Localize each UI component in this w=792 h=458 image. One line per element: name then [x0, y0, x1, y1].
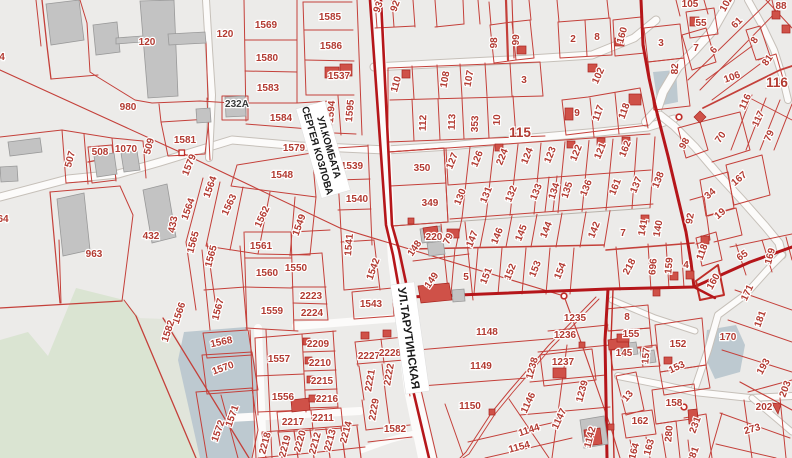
svg-text:115: 115 — [509, 125, 531, 140]
svg-text:55: 55 — [695, 18, 707, 29]
svg-text:202: 202 — [756, 402, 773, 413]
svg-text:1583: 1583 — [257, 83, 280, 94]
svg-text:2223: 2223 — [300, 291, 323, 302]
svg-text:1556: 1556 — [272, 392, 295, 403]
svg-text:1070: 1070 — [115, 144, 138, 155]
svg-text:152: 152 — [670, 339, 687, 350]
svg-text:2224: 2224 — [301, 308, 324, 319]
svg-text:5: 5 — [463, 272, 469, 283]
svg-text:98: 98 — [489, 37, 500, 49]
svg-text:963: 963 — [86, 249, 103, 260]
svg-text:155: 155 — [623, 329, 640, 340]
svg-text:7: 7 — [620, 228, 626, 239]
svg-text:1537: 1537 — [328, 71, 351, 82]
svg-text:3: 3 — [521, 75, 527, 86]
svg-text:145: 145 — [616, 348, 633, 359]
svg-text:1148: 1148 — [476, 327, 498, 338]
svg-text:159: 159 — [663, 257, 675, 275]
svg-text:1569: 1569 — [255, 20, 278, 31]
svg-text:7: 7 — [693, 43, 699, 54]
svg-text:508: 508 — [92, 147, 109, 158]
svg-text:1557: 1557 — [268, 354, 291, 365]
svg-text:4: 4 — [683, 260, 689, 271]
svg-text:170: 170 — [720, 332, 737, 343]
svg-text:82: 82 — [670, 63, 681, 75]
svg-text:2209: 2209 — [307, 339, 330, 350]
svg-text:1543: 1543 — [360, 299, 383, 310]
svg-text:1559: 1559 — [261, 306, 284, 317]
svg-text:8: 8 — [624, 312, 630, 323]
svg-text:1579: 1579 — [283, 143, 306, 154]
svg-text:2: 2 — [570, 34, 576, 45]
svg-text:3: 3 — [658, 38, 664, 49]
svg-text:116: 116 — [766, 75, 788, 90]
svg-text:1548: 1548 — [271, 170, 294, 181]
svg-text:2228: 2228 — [379, 348, 402, 359]
svg-text:1581: 1581 — [174, 135, 197, 146]
svg-text:1560: 1560 — [256, 268, 279, 279]
svg-text:1235: 1235 — [564, 313, 587, 324]
svg-text:2227: 2227 — [358, 351, 381, 362]
svg-text:350: 350 — [414, 163, 431, 174]
svg-text:1541: 1541 — [343, 233, 356, 257]
svg-text:2210: 2210 — [309, 358, 332, 369]
svg-text:64: 64 — [0, 214, 9, 225]
svg-text:88: 88 — [775, 1, 787, 12]
svg-text:2216: 2216 — [316, 394, 339, 405]
svg-text:99: 99 — [511, 34, 522, 46]
svg-text:1595: 1595 — [344, 99, 357, 123]
svg-text:1584: 1584 — [270, 113, 293, 124]
svg-text:8: 8 — [594, 32, 600, 43]
svg-text:1149: 1149 — [470, 361, 492, 372]
svg-text:1540: 1540 — [346, 194, 369, 205]
svg-text:1236: 1236 — [554, 330, 577, 341]
svg-text:232A: 232A — [225, 99, 249, 110]
svg-text:105: 105 — [682, 0, 699, 10]
svg-text:1561: 1561 — [250, 241, 273, 252]
svg-text:120: 120 — [139, 37, 156, 48]
svg-text:1550: 1550 — [285, 263, 308, 274]
svg-text:9: 9 — [574, 108, 580, 119]
svg-text:162: 162 — [632, 416, 649, 427]
svg-text:220: 220 — [426, 232, 443, 243]
svg-text:980: 980 — [120, 102, 137, 113]
svg-text:1585: 1585 — [319, 12, 342, 23]
svg-text:10: 10 — [492, 114, 503, 126]
svg-text:1580: 1580 — [256, 53, 279, 64]
svg-text:113: 113 — [447, 113, 459, 130]
svg-text:4: 4 — [0, 52, 5, 63]
svg-text:112: 112 — [418, 114, 430, 131]
svg-text:353: 353 — [470, 115, 482, 132]
svg-text:2215: 2215 — [311, 376, 334, 387]
svg-text:1237: 1237 — [552, 357, 575, 368]
svg-text:2211: 2211 — [312, 413, 334, 424]
svg-text:120: 120 — [217, 29, 234, 40]
svg-text:1150: 1150 — [459, 401, 481, 412]
svg-text:158: 158 — [666, 398, 683, 409]
svg-text:280: 280 — [663, 425, 675, 443]
svg-text:2217: 2217 — [282, 417, 305, 428]
svg-text:1582: 1582 — [384, 424, 407, 435]
svg-text:432: 432 — [143, 231, 160, 242]
svg-text:696: 696 — [647, 258, 659, 276]
svg-text:1586: 1586 — [320, 41, 343, 52]
svg-text:157: 157 — [640, 347, 652, 365]
svg-text:349: 349 — [422, 198, 439, 209]
